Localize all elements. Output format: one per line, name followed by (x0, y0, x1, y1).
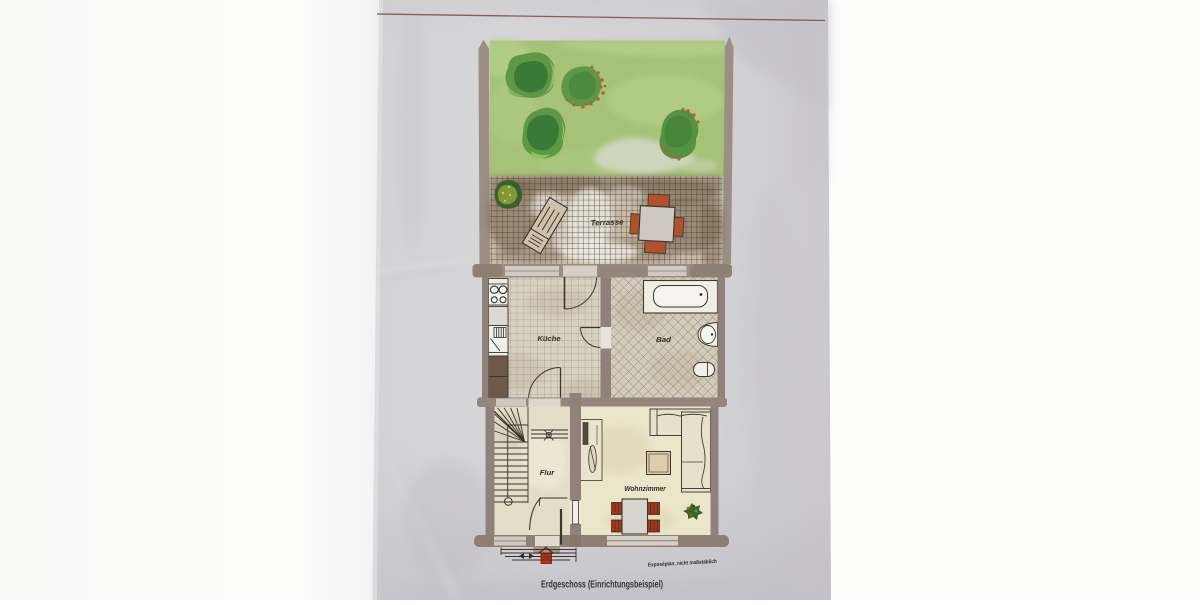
svg-text:Bad: Bad (656, 335, 671, 344)
svg-text:Küche: Küche (538, 334, 561, 343)
svg-text:Flur: Flur (540, 468, 556, 477)
svg-text:Terrasse: Terrasse (590, 217, 624, 227)
svg-text:Wohnzimmer: Wohnzimmer (624, 484, 666, 493)
svg-text:Erdgeschoss (Einrichtungsbeisp: Erdgeschoss (Einrichtungsbeispiel) (541, 580, 663, 591)
